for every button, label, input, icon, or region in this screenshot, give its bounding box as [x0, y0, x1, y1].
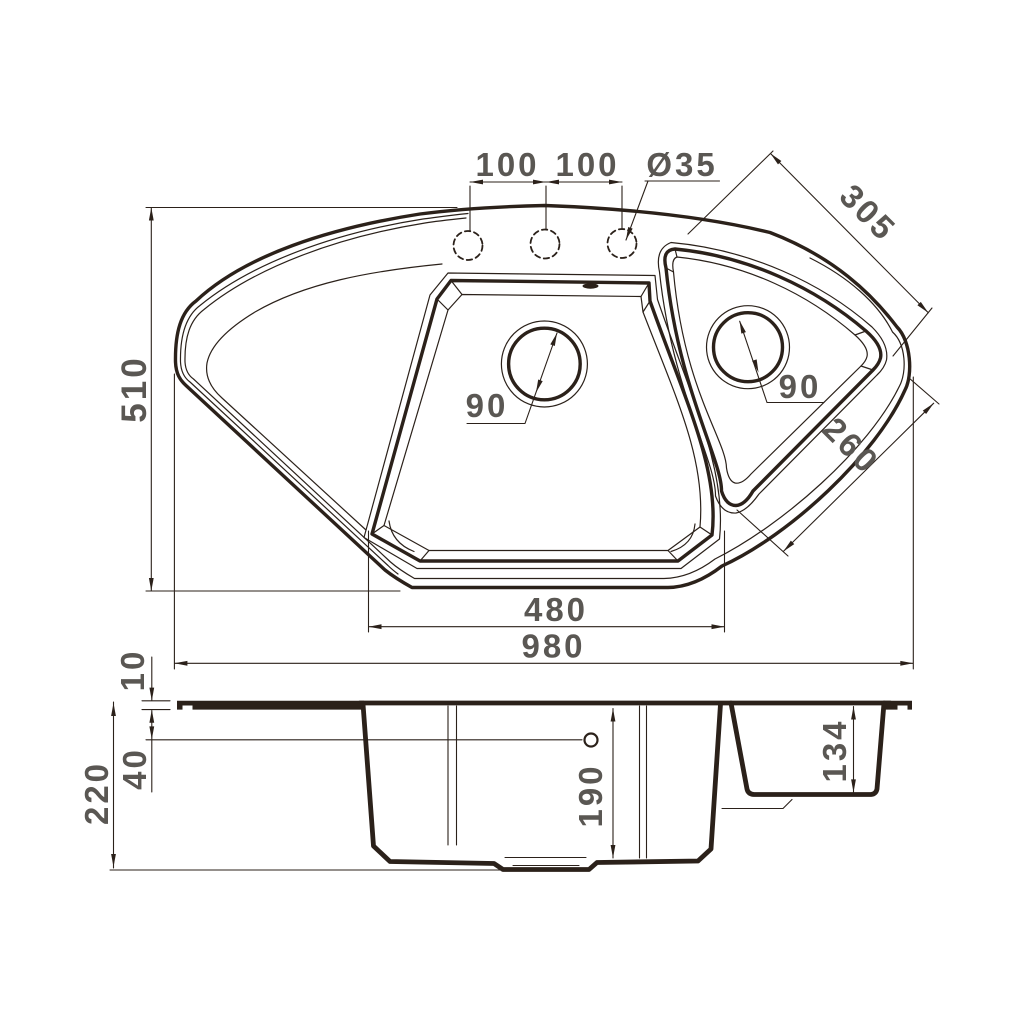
svg-text:190: 190 — [572, 763, 609, 827]
svg-text:90: 90 — [466, 387, 509, 424]
svg-text:Ø35: Ø35 — [646, 146, 717, 183]
svg-text:510: 510 — [115, 355, 154, 422]
svg-text:100: 100 — [555, 146, 619, 183]
svg-text:980: 980 — [521, 628, 585, 665]
svg-text:220: 220 — [78, 761, 115, 825]
svg-text:90: 90 — [779, 368, 822, 405]
svg-text:10: 10 — [114, 649, 151, 692]
svg-text:480: 480 — [524, 591, 588, 628]
svg-text:40: 40 — [116, 747, 153, 790]
svg-text:134: 134 — [816, 718, 853, 782]
svg-text:100: 100 — [475, 146, 539, 183]
